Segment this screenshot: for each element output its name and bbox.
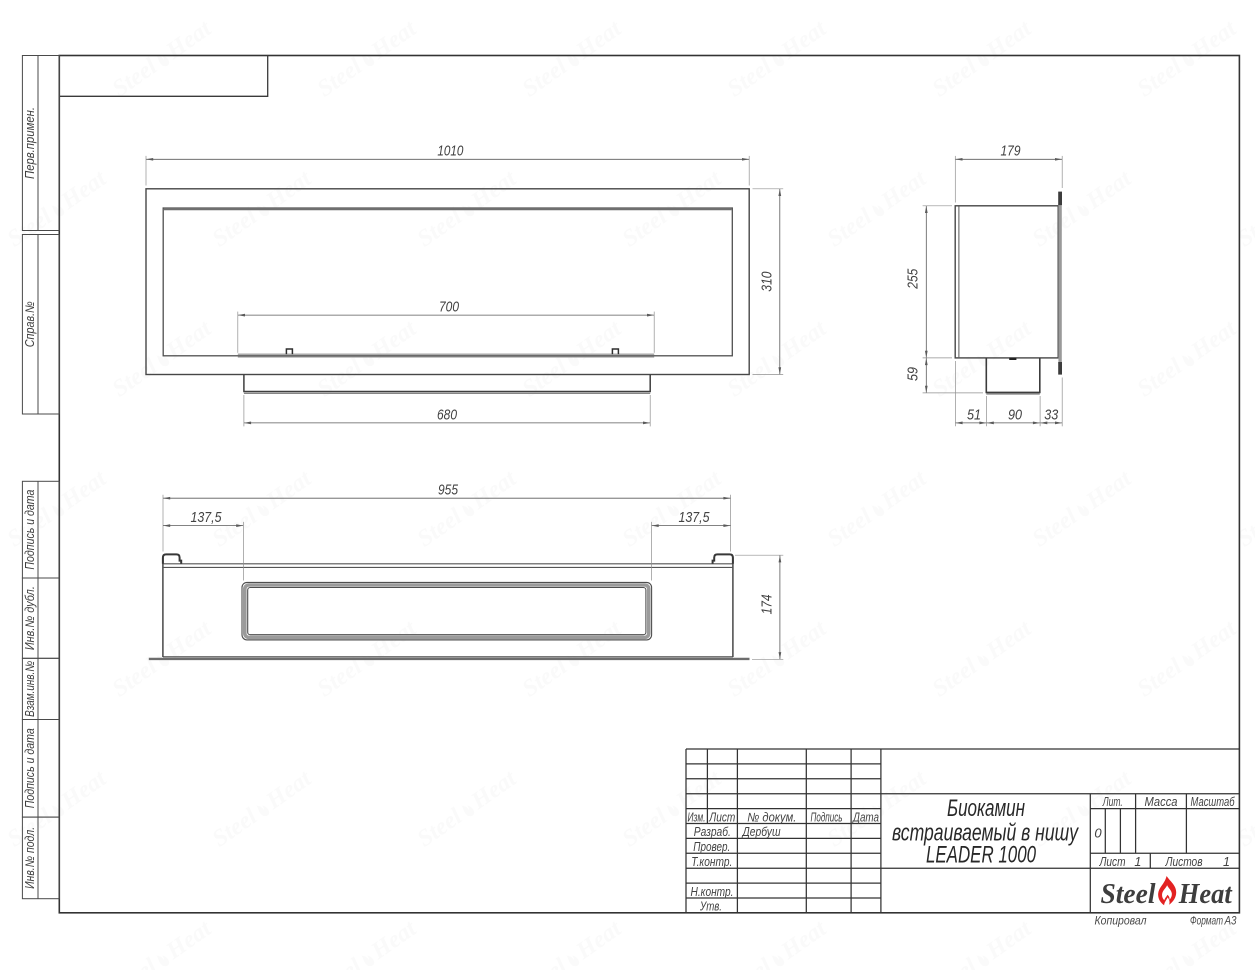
svg-text:Steel: Steel	[1101, 878, 1157, 910]
svg-text:Лист: Лист	[1099, 855, 1126, 869]
svg-text:Биокамин: Биокамин	[947, 795, 1025, 822]
svg-text:Подпись: Подпись	[811, 810, 843, 824]
svg-text:Масса: Масса	[1145, 795, 1178, 809]
svg-text:90: 90	[1008, 406, 1023, 423]
svg-text:LEADER 1000: LEADER 1000	[926, 842, 1036, 869]
svg-text:137,5: 137,5	[679, 509, 711, 526]
svg-text:Взам.инв.№: Взам.инв.№	[23, 661, 37, 717]
svg-text:1010: 1010	[437, 143, 464, 160]
svg-text:Листов: Листов	[1165, 855, 1203, 869]
svg-text:1: 1	[1134, 855, 1141, 869]
svg-text:Н.контр.: Н.контр.	[691, 885, 734, 899]
svg-text:174: 174	[758, 594, 775, 614]
svg-text:Подпись и дата: Подпись и дата	[23, 490, 37, 570]
svg-text:Инв.№ дубл.: Инв.№ дубл.	[23, 586, 37, 650]
svg-text:Дербуш: Дербуш	[741, 825, 781, 839]
svg-text:59: 59	[905, 366, 922, 381]
svg-text:Перв.примен.: Перв.примен.	[23, 107, 37, 179]
svg-text:Лит.: Лит.	[1102, 795, 1123, 809]
svg-text:179: 179	[1001, 143, 1022, 160]
svg-text:51: 51	[967, 406, 981, 423]
svg-text:0: 0	[1094, 826, 1102, 841]
svg-text:137,5: 137,5	[191, 509, 223, 526]
svg-text:Инв.№ подл.: Инв.№ подл.	[23, 827, 37, 889]
svg-text:700: 700	[439, 299, 460, 316]
svg-text:1: 1	[1223, 855, 1230, 869]
svg-text:255: 255	[905, 268, 922, 289]
svg-text:Лист: Лист	[708, 810, 735, 824]
svg-text:Дата: Дата	[851, 810, 879, 824]
svg-text:Копировал: Копировал	[1095, 916, 1147, 928]
svg-text:Изм.: Изм.	[688, 810, 706, 824]
svg-text:Т.контр.: Т.контр.	[691, 855, 732, 869]
svg-text:Разраб.: Разраб.	[694, 825, 731, 839]
svg-text:№ докум.: № докум.	[747, 810, 796, 824]
svg-text:Heat: Heat	[1178, 878, 1233, 910]
svg-text:310: 310	[759, 271, 776, 292]
svg-text:Формат: Формат	[1190, 916, 1223, 928]
svg-text:Подпись и дата: Подпись и дата	[23, 728, 37, 808]
svg-text:Утв.: Утв.	[699, 900, 722, 914]
svg-text:Справ.№: Справ.№	[23, 301, 37, 347]
svg-text:33: 33	[1044, 406, 1059, 423]
svg-text:А3: А3	[1224, 916, 1237, 928]
svg-text:Масштаб: Масштаб	[1191, 795, 1236, 809]
svg-text:955: 955	[438, 482, 459, 499]
svg-text:Провер.: Провер.	[693, 840, 730, 854]
svg-text:680: 680	[437, 406, 458, 423]
